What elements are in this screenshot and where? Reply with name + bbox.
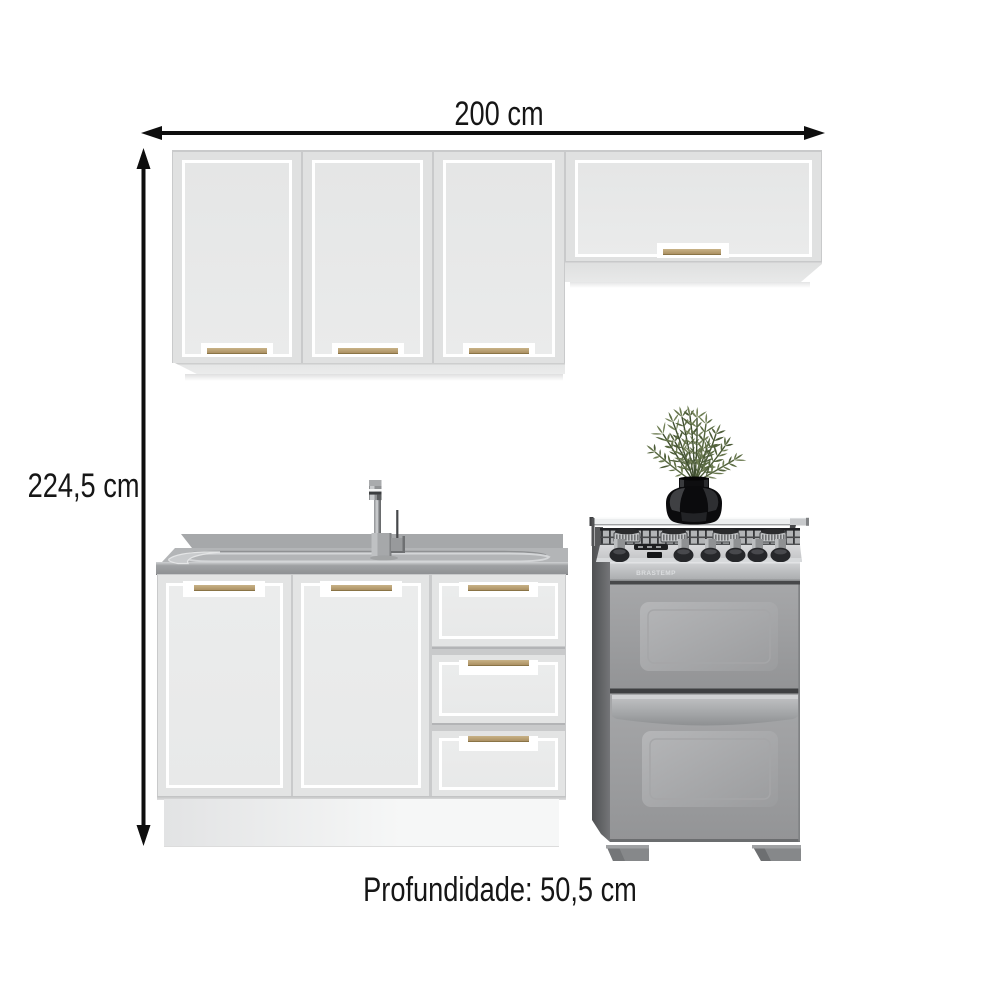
svg-text:BRASTEMP: BRASTEMP <box>636 570 676 577</box>
